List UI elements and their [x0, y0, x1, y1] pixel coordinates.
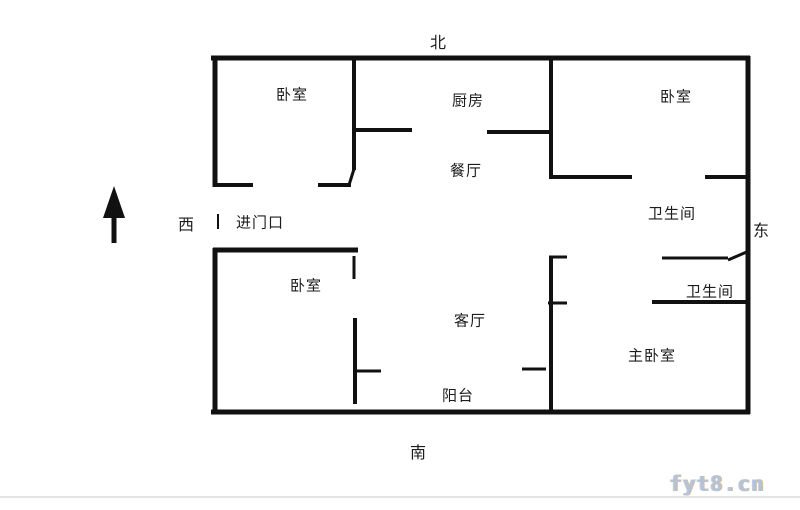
compass-west-label: 西 — [178, 217, 194, 233]
door-bedroom-nw-leaf — [349, 169, 354, 185]
floorplan: 北 南 西 东 卧室 厨房 餐厅 卧室 卫生间 卫生间 进门口 卧室 客厅 主卧… — [0, 0, 800, 510]
compass-south-label: 南 — [410, 445, 426, 461]
room-label-living: 客厅 — [454, 314, 486, 329]
room-label-entrance: 进门口 — [236, 216, 284, 231]
room-label-bathroom-upper: 卫生间 — [648, 207, 696, 222]
compass-north-label: 北 — [430, 35, 446, 51]
bottom-edge-artifact — [0, 496, 800, 498]
watermark: fyt8.cn — [669, 472, 765, 496]
room-label-bedroom-sw: 卧室 — [290, 279, 322, 294]
room-label-bedroom-nw: 卧室 — [276, 88, 308, 103]
north-arrow-head — [103, 186, 125, 218]
room-label-bathroom-lower: 卫生间 — [686, 285, 734, 300]
room-label-dining: 餐厅 — [450, 164, 482, 179]
compass-east-label: 东 — [753, 223, 769, 239]
room-label-kitchen: 厨房 — [452, 94, 484, 109]
room-label-bedroom-ne: 卧室 — [660, 90, 692, 105]
room-label-balcony: 阳台 — [442, 389, 474, 404]
floorplan-walls — [0, 0, 800, 510]
room-label-master-bedroom: 主卧室 — [628, 349, 676, 364]
